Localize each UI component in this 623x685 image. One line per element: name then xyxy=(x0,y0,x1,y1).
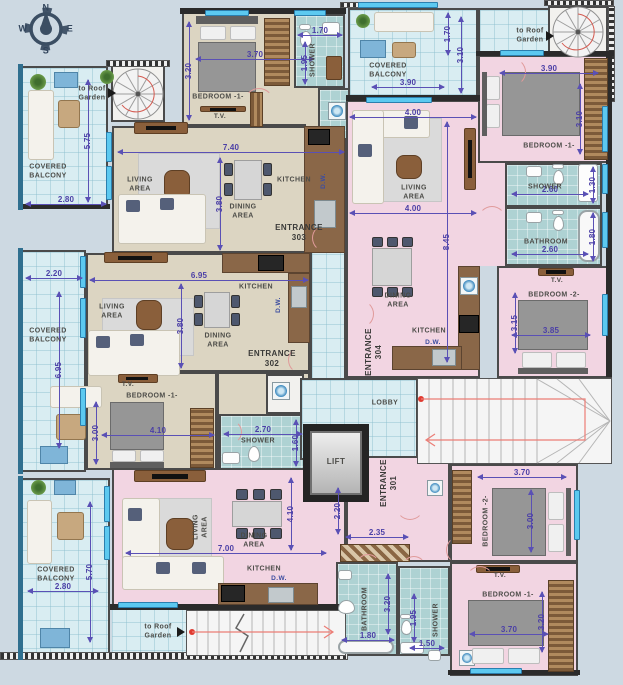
window xyxy=(106,166,112,200)
coffee-table xyxy=(166,518,194,550)
wardrobe xyxy=(190,408,214,468)
dining-table xyxy=(204,292,230,328)
label-entrance-304: ENTRANCE 304 xyxy=(364,328,384,376)
dim-r-bath-height: 1.80 xyxy=(593,213,594,261)
washer-icon xyxy=(427,480,443,496)
stove xyxy=(459,315,479,333)
label-shower-apt303: SHOWER xyxy=(310,43,319,77)
dim-b-bath-height: 3.20 xyxy=(388,574,389,634)
sofa xyxy=(122,556,224,590)
window xyxy=(602,106,608,152)
dim-tl-balcony-width: 2.80 xyxy=(26,204,106,205)
window xyxy=(118,602,178,608)
window xyxy=(80,388,86,426)
window xyxy=(104,526,110,560)
label-dining-apt303: DINING AREA xyxy=(225,203,261,221)
plant xyxy=(31,480,46,495)
window xyxy=(80,298,86,338)
dim-ml-balcony-height: 6.95 xyxy=(59,292,60,448)
chair xyxy=(387,237,398,247)
label-entrance-301: ENTRANCE 301 xyxy=(379,459,399,507)
compass-east-label: E xyxy=(67,23,73,34)
wall xyxy=(18,64,23,210)
tv xyxy=(118,256,152,260)
dim-b-balcony-height: 5.70 xyxy=(90,502,91,642)
tv xyxy=(468,140,472,178)
label-roof-garden-tr: to Roof Garden xyxy=(511,27,549,45)
toilet-tank xyxy=(299,24,311,30)
label-roof-garden-b: to Roof Garden xyxy=(139,623,177,641)
dim-tl-bed-height: 3.20 xyxy=(189,22,190,120)
bed xyxy=(468,600,544,646)
label-lift: LIFT xyxy=(327,457,345,467)
label-tv-apt303: T.V. xyxy=(214,113,226,121)
dim-r-balcony-height1: 1.70 xyxy=(448,13,449,55)
sofa xyxy=(352,110,384,204)
dining-table xyxy=(232,501,282,527)
lounger xyxy=(360,40,386,58)
cushion xyxy=(128,508,142,521)
bed-headboard xyxy=(110,462,164,468)
stove xyxy=(221,585,245,602)
label-dw-apt302: D.W. xyxy=(275,297,283,313)
kitchen-sink xyxy=(291,286,307,308)
dim-ml-bed-width: 4.10 xyxy=(102,435,214,436)
label-covered-balcony-tl: COVERED BALCONY xyxy=(23,163,73,181)
label-dining-apt301: DINING AREA xyxy=(236,532,272,550)
door-arc xyxy=(466,566,494,594)
chair xyxy=(372,237,383,247)
dim-r-bed1-width: 3.90 xyxy=(500,73,598,74)
tv xyxy=(152,474,188,479)
chair xyxy=(231,313,240,326)
balcony-sofa xyxy=(374,12,434,32)
wall xyxy=(18,476,23,660)
spiral-stair-icon xyxy=(548,4,608,60)
dim-tl-shower-width: 1.70 xyxy=(298,35,342,36)
basin xyxy=(526,166,542,177)
dim-ml-bed-height: 3.00 xyxy=(96,402,97,464)
chair xyxy=(253,489,265,500)
label-roof-garden-tl: to Roof Garden xyxy=(73,85,111,103)
label-tv-apt304: T.V. xyxy=(551,277,563,285)
dim-r-shower-width: 2.60 xyxy=(512,194,588,195)
compass-north-label: N xyxy=(43,2,50,13)
pillow xyxy=(140,450,164,462)
basin xyxy=(526,212,542,223)
bed-headboard xyxy=(196,16,258,24)
dim-r-bed1-height: 3.10 xyxy=(580,84,581,154)
dim-r-bath-width: 2.60 xyxy=(512,254,588,255)
label-bathroom-apt304: BATHROOM xyxy=(524,239,568,248)
chair xyxy=(263,183,272,196)
wall xyxy=(18,248,23,474)
label-kitchen-apt301: KITCHEN xyxy=(247,566,281,575)
label-kitchen-apt303: KITCHEN xyxy=(277,177,311,186)
dim-ml-living-height: 3.80 xyxy=(181,284,182,368)
door-arc xyxy=(356,554,380,578)
toilet xyxy=(338,600,355,614)
door-arc xyxy=(218,420,242,444)
plant xyxy=(100,70,114,84)
chair xyxy=(263,163,272,176)
dim-b-bed2-width: 3.70 xyxy=(478,477,566,478)
chair xyxy=(224,163,233,176)
wardrobe xyxy=(452,470,472,544)
dining-table xyxy=(234,160,262,200)
label-dw-apt301: D.W. xyxy=(271,575,287,583)
pillow xyxy=(548,492,564,520)
washer-icon xyxy=(328,102,346,120)
dim-tl-living-width: 7.40 xyxy=(118,152,344,153)
wardrobe xyxy=(264,18,290,86)
dim-tl-bed-width: 3.70 xyxy=(196,59,314,60)
toilet-tank xyxy=(552,164,564,169)
label-kitchen-apt302: KITCHEN xyxy=(239,284,273,293)
label-bedroom1-apt301: BEDROOM -1- xyxy=(482,592,533,601)
pillow xyxy=(486,104,500,128)
label-lobby: LOBBY xyxy=(372,400,399,409)
coffee-table xyxy=(396,155,422,179)
dim-b-bath-width: 1.80 xyxy=(342,640,394,641)
stove xyxy=(258,255,284,271)
dim-r-balcony-width: 3.90 xyxy=(372,87,444,88)
label-living-apt301: LIVING AREA xyxy=(192,510,210,544)
label-shower-apt304: SHOWER xyxy=(528,184,562,193)
cushion xyxy=(96,336,110,348)
stove xyxy=(308,129,330,145)
chair xyxy=(236,489,248,500)
dim-b-living-width: 7.00 xyxy=(126,553,326,554)
dim-ml-living-width: 6.95 xyxy=(90,280,308,281)
label-covered-balcony-bl: COVERED BALCONY xyxy=(31,566,81,584)
bed xyxy=(518,300,588,350)
window xyxy=(602,212,608,248)
pillow xyxy=(486,76,500,100)
label-bedroom2-apt301: BEDROOM -2- xyxy=(483,495,492,546)
basin xyxy=(222,452,240,464)
dim-b-living-height: 4.10 xyxy=(291,478,292,550)
plant xyxy=(356,14,370,28)
bottom-staircase xyxy=(186,610,346,656)
cushion xyxy=(192,562,206,574)
label-living-apt303: LIVING AREA xyxy=(122,176,158,194)
chair xyxy=(194,295,203,308)
label-bedroom1-apt304: BEDROOM -1- xyxy=(523,143,574,152)
door-arc xyxy=(478,206,506,234)
washer-icon xyxy=(460,277,478,295)
balcony-table xyxy=(57,512,84,540)
label-bedroom1-apt303: BEDROOM -1- xyxy=(192,94,243,103)
window xyxy=(366,97,432,103)
balcony-sofa xyxy=(28,90,54,160)
cushion xyxy=(126,200,140,212)
dim-r-balcony-height2: 3.10 xyxy=(461,17,462,93)
toilet xyxy=(553,216,564,231)
window xyxy=(574,490,580,540)
dim-b-bed1-width: 3.70 xyxy=(470,634,548,635)
dim-ml-shower-height: 1.60 xyxy=(296,420,297,466)
label-living-apt304: LIVING AREA xyxy=(396,184,432,202)
basin xyxy=(428,650,441,661)
pillow xyxy=(556,352,586,368)
arrow-right-icon xyxy=(177,627,185,637)
cabinet xyxy=(326,56,342,80)
dim-r-living-width-mid: 4.00 xyxy=(350,213,476,214)
chair xyxy=(270,489,282,500)
balcony-sofa xyxy=(27,500,52,564)
door-arc xyxy=(402,556,426,580)
bed-headboard xyxy=(566,488,571,556)
compass-south-label: S xyxy=(43,45,49,56)
dim-tl-shower-height: 1.95 xyxy=(305,42,306,84)
label-bedroom1-apt302: BEDROOM -1- xyxy=(126,393,177,402)
window xyxy=(602,294,608,336)
pillow xyxy=(230,26,256,40)
door-arc xyxy=(244,88,274,118)
pillow xyxy=(522,352,552,368)
window xyxy=(500,50,544,56)
window xyxy=(80,256,86,288)
chair xyxy=(224,183,233,196)
bed-headboard xyxy=(518,368,588,374)
window xyxy=(602,164,608,194)
label-tv-apt301: T.V. xyxy=(494,572,506,580)
bed-headboard xyxy=(482,72,487,136)
kitchen-sink xyxy=(268,587,294,603)
chair xyxy=(231,295,240,308)
label-bathroom-apt301: BATHROOM xyxy=(362,587,371,631)
tv xyxy=(546,270,566,274)
dim-b-bed2-height: 3.00 xyxy=(531,490,532,552)
label-dw-apt303: D.W. xyxy=(320,173,328,189)
pillow xyxy=(472,648,504,664)
label-dining-apt302: DINING AREA xyxy=(200,332,236,350)
kitchen-counter xyxy=(288,273,310,343)
lounger xyxy=(40,446,68,464)
spiral-stair-icon xyxy=(111,64,165,122)
dim-b-balcony-width: 2.80 xyxy=(28,591,98,592)
dim-b-shower-width: 1.50 xyxy=(410,648,444,649)
wardrobe xyxy=(548,580,574,672)
dim-r-shower-height: 1.30 xyxy=(593,167,594,203)
window xyxy=(358,2,438,8)
tv xyxy=(146,126,176,130)
pillow xyxy=(112,450,136,462)
main-staircase xyxy=(417,378,612,464)
pillow xyxy=(508,648,540,664)
chair xyxy=(194,313,203,326)
label-dining-apt304: DINING AREA xyxy=(380,292,416,310)
washer-icon xyxy=(272,382,290,400)
balcony-table xyxy=(392,42,416,58)
lounger xyxy=(54,480,76,495)
dim-b-shower-height: 1.95 xyxy=(414,594,415,642)
cushion xyxy=(156,562,170,574)
dining-table xyxy=(372,248,412,286)
coffee-table xyxy=(136,300,162,330)
dim-b-bed1-height: 3.20 xyxy=(542,592,543,652)
window xyxy=(294,10,326,16)
label-bedroom2-apt304: BEDROOM -2- xyxy=(528,292,579,301)
dim-ml-balcony-width: 2.20 xyxy=(26,278,82,279)
door-arc xyxy=(446,536,474,564)
cushion xyxy=(160,198,174,210)
tv xyxy=(210,108,236,111)
label-kitchen-apt304: KITCHEN xyxy=(412,328,446,337)
cushion xyxy=(358,144,372,157)
label-shower-apt302: SHOWER xyxy=(241,438,275,447)
dim-r-bed2-width: 3.85 xyxy=(512,335,590,336)
chair xyxy=(402,237,413,247)
pillow xyxy=(200,26,226,40)
dim-b-hall-height: 2.20 xyxy=(338,488,339,534)
dim-r-living-height: 8.45 xyxy=(447,122,448,362)
lounger xyxy=(40,628,70,648)
label-covered-balcony-ml: COVERED BALCONY xyxy=(23,327,73,345)
label-covered-balcony-tr: COVERED BALCONY xyxy=(363,62,413,80)
dim-tl-living-height: 3.80 xyxy=(220,158,221,250)
cushion xyxy=(130,334,144,346)
compass-west-label: W xyxy=(19,23,28,34)
window xyxy=(205,10,249,16)
label-tv-apt302: T.V. xyxy=(122,381,134,389)
pillow xyxy=(548,524,564,552)
toilet-tank xyxy=(552,210,564,215)
label-entrance-302: ENTRANCE 302 xyxy=(246,349,298,369)
window xyxy=(106,132,112,162)
window xyxy=(470,668,522,674)
dim-r-bed2-height: 3.15 xyxy=(515,293,516,353)
balcony-table xyxy=(58,100,80,128)
label-entrance-303: ENTRANCE 303 xyxy=(273,223,325,243)
window xyxy=(104,486,110,522)
basin xyxy=(338,570,352,580)
dim-b-wardrobe-width: 2.35 xyxy=(346,537,408,538)
label-dw-apt304: D.W. xyxy=(425,339,441,347)
label-living-apt302: LIVING AREA xyxy=(94,303,130,321)
floor-plan: 3.70 3.20 1.70 1.95 7.40 3.80 5.75 2.80 … xyxy=(0,0,623,685)
plant xyxy=(30,74,46,90)
tv xyxy=(126,377,148,380)
dim-r-living-width-top: 4.00 xyxy=(350,117,476,118)
toilet xyxy=(248,446,260,462)
door-arc xyxy=(346,300,374,328)
label-shower-apt301: SHOWER xyxy=(433,603,442,637)
door-arc xyxy=(396,492,424,520)
bed xyxy=(492,488,546,556)
